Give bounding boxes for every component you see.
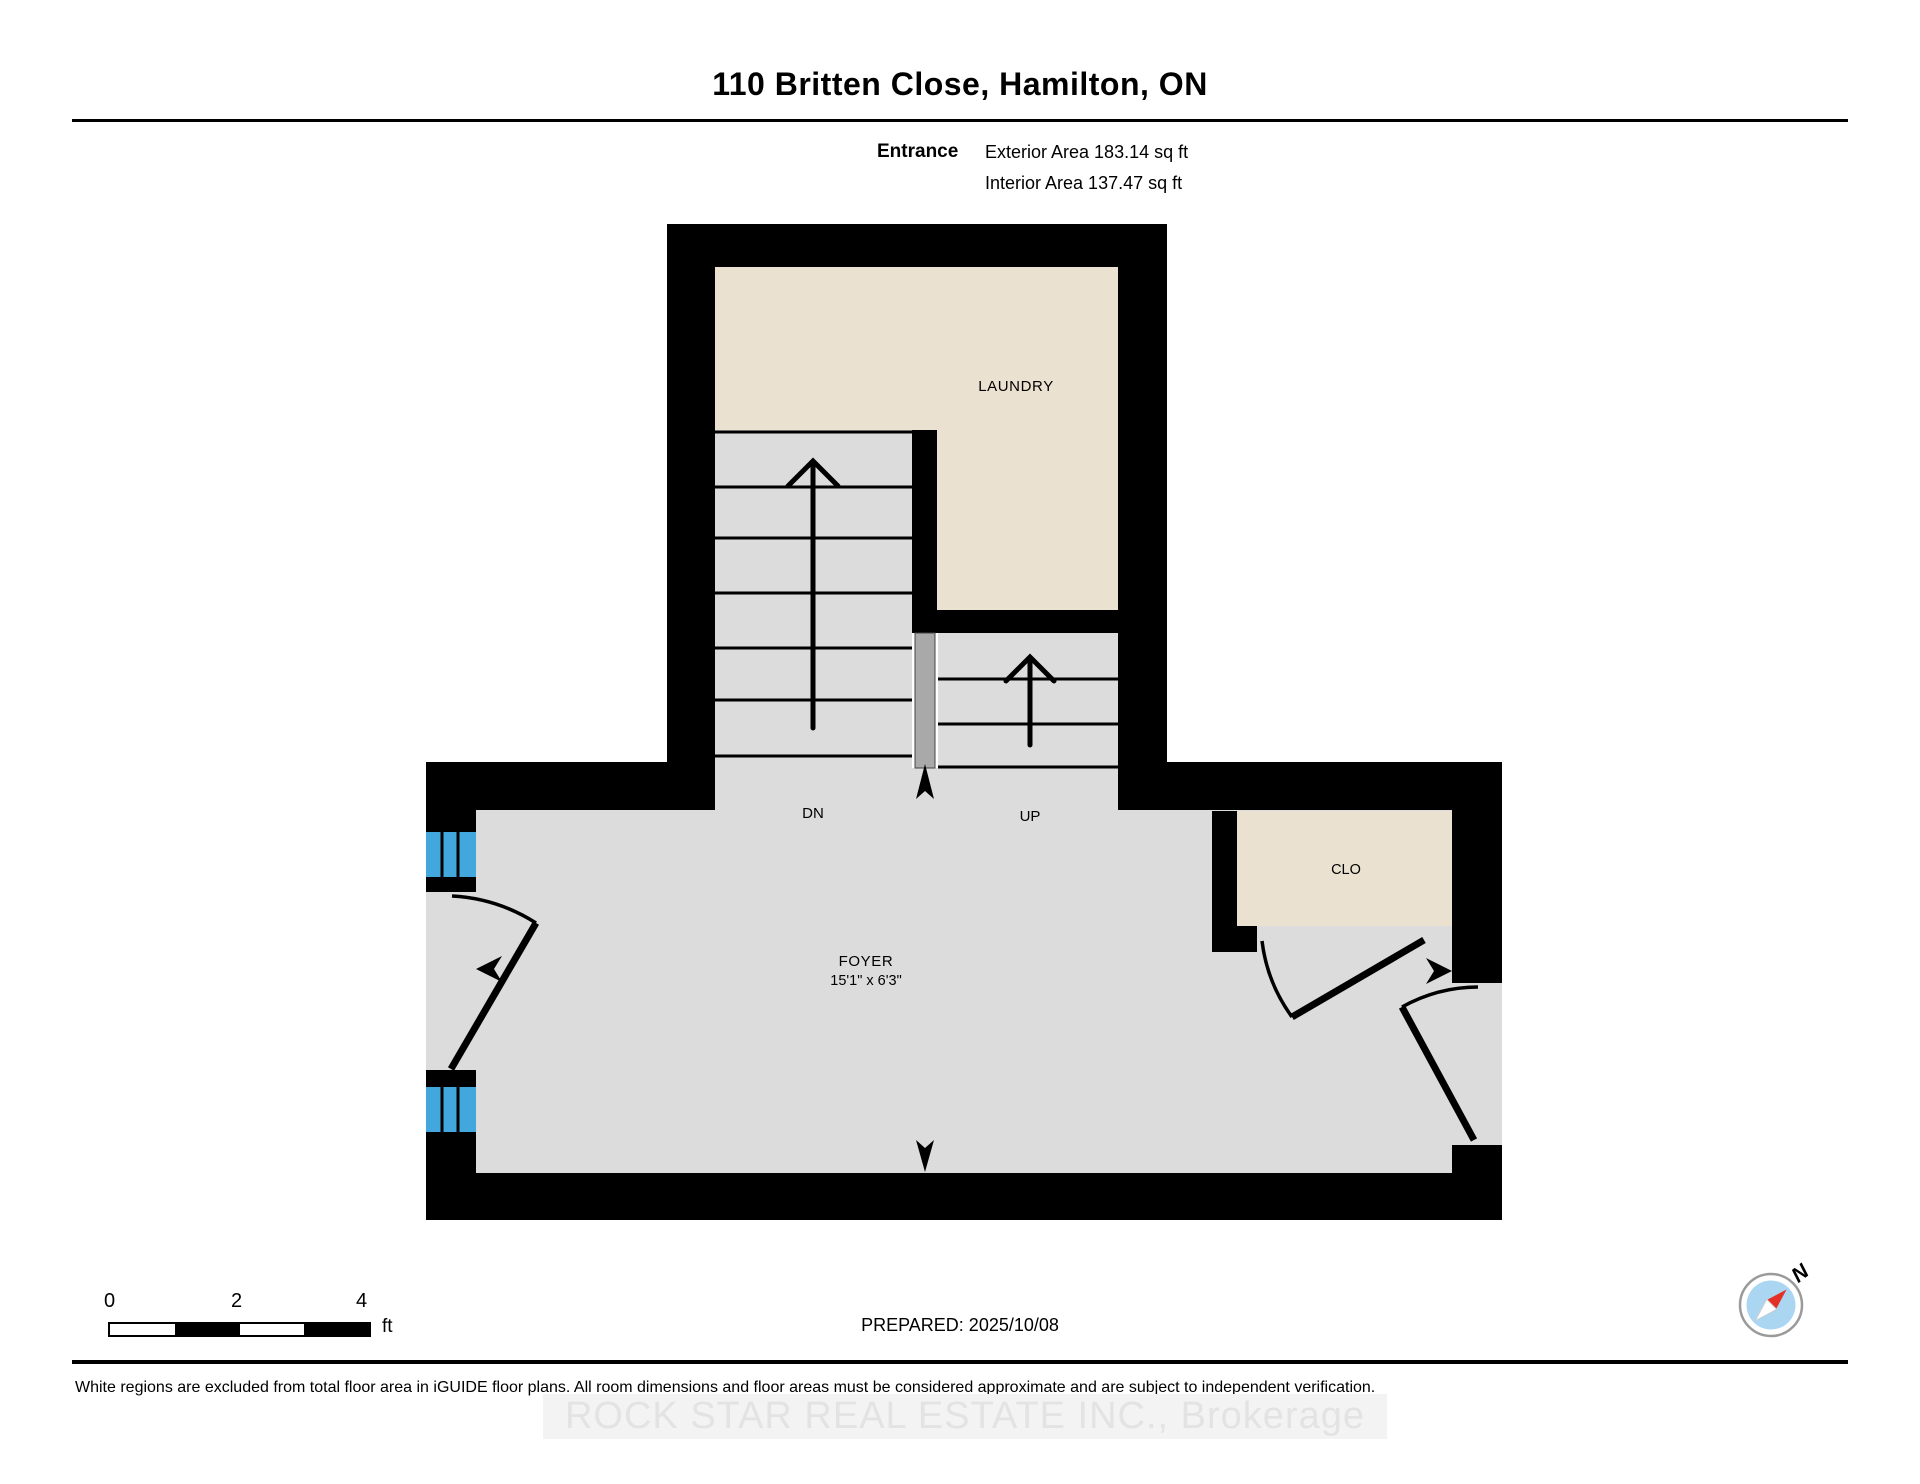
wall-closet-stub <box>1212 926 1257 952</box>
laundry-label: LAUNDRY <box>978 378 1054 395</box>
wall-bottom <box>426 1173 1502 1220</box>
wall-top <box>667 224 1167 267</box>
wall-left-seg2 <box>426 1070 476 1087</box>
wall-left-seg1 <box>426 810 476 832</box>
wall-laundry-upstairs <box>912 610 1167 633</box>
scale-tick-4: 4 <box>356 1290 367 1313</box>
wall-upper-right <box>1118 267 1167 810</box>
scale-tick-0: 0 <box>104 1290 115 1313</box>
foyer-floor-upper-mid <box>912 768 1122 810</box>
wall-foyer-top-right <box>1167 762 1502 810</box>
dn-label: DN <box>802 805 824 822</box>
brokerage-watermark: ROCK STAR REAL ESTATE INC., Brokerage <box>543 1394 1387 1439</box>
wall-left-sill <box>426 877 476 892</box>
stair-railing <box>915 633 935 768</box>
entry-door-opening <box>1452 983 1502 1145</box>
prepared-date: PREPARED: 2025/10/08 <box>0 1315 1920 1336</box>
closet-label: CLO <box>1331 862 1361 878</box>
window-lower <box>426 1087 476 1132</box>
up-label: UP <box>1020 808 1041 825</box>
footer-divider-line <box>72 1360 1848 1364</box>
wall-upper-left <box>667 267 715 810</box>
wall-stair-divider <box>912 430 937 633</box>
foyer-dims-label: 15'1" x 6'3" <box>830 973 901 989</box>
scale-tick-2: 2 <box>231 1290 242 1313</box>
foyer-floor-upper-left <box>715 757 912 810</box>
foyer-label: FOYER <box>839 953 894 970</box>
wall-foyer-top-left <box>426 762 715 810</box>
wall-right-seg1 <box>1452 810 1502 983</box>
floor-plan-page: 110 Britten Close, Hamilton, ON Entrance… <box>0 0 1920 1484</box>
window-upper <box>426 832 476 877</box>
wall-right-seg2 <box>1452 1145 1502 1220</box>
floor-plan-svg: LAUNDRY DN UP FOYER 15'1" x 6'3" CLO <box>0 0 1920 1484</box>
